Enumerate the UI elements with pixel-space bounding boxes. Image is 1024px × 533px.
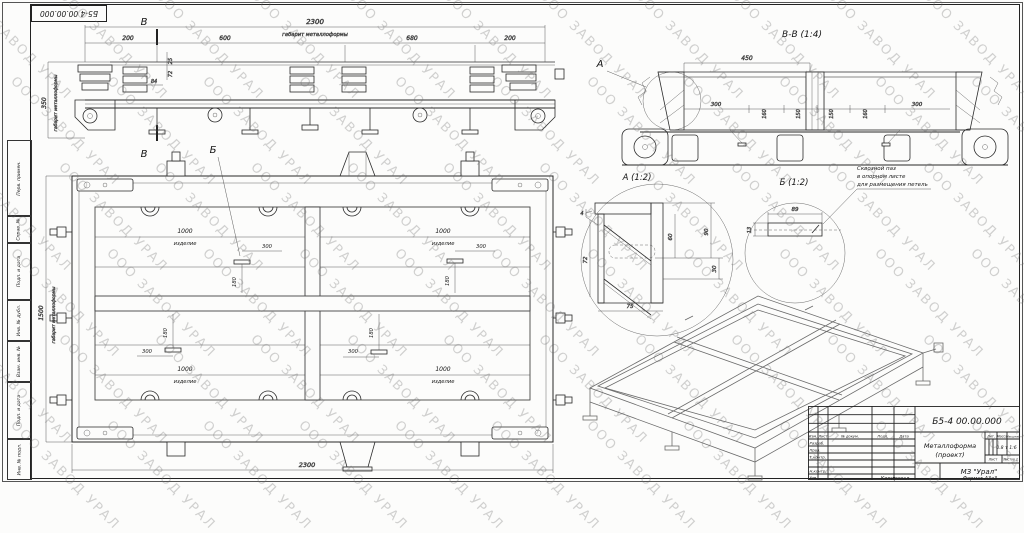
- dim-300-r: 300: [912, 102, 923, 108]
- dim-150-r: 150: [829, 109, 835, 119]
- slot-180-q3: 180: [163, 327, 169, 338]
- row-razrab: Разраб.: [810, 441, 825, 446]
- dim-13: 13: [747, 227, 753, 233]
- slot-180-q1: 180: [232, 276, 238, 287]
- side-label: Перв. примен.: [17, 161, 22, 196]
- row-prov: Пров.: [810, 448, 821, 453]
- left-end-bracket: [75, 65, 115, 130]
- engineering-drawing-sheet: { "watermark": { "text": "ООО ЗАВОД УРАЛ…: [0, 0, 1024, 483]
- col-data: Дата: [898, 435, 908, 439]
- bb-callout-a: А: [596, 59, 701, 130]
- slot-300-q1: 300: [262, 244, 273, 250]
- side-box-inv-podl: Инв. № подл.: [7, 438, 32, 480]
- dim-600: 600: [219, 35, 231, 42]
- col-list: Лист: [817, 435, 828, 439]
- section-bb-title: В-В (1:4): [782, 30, 822, 40]
- dim-350-note: габарит металлоформы: [53, 74, 59, 131]
- designation: Б5-4 00.00.000: [932, 417, 1002, 427]
- note-line-2: в опорном листе: [857, 174, 906, 180]
- detail-b-geometry: [749, 223, 841, 236]
- detail-b-title: Б (1:2): [780, 178, 809, 188]
- front-view: В В 2300 габарит металлоформы 200 600 68…: [40, 5, 575, 165]
- dim-2300: 2300: [306, 18, 324, 26]
- dim-200l: 200: [122, 35, 134, 42]
- detail-b-note: Сквозной паз в опорном листе для размеще…: [823, 166, 931, 224]
- side-box-sprav: Справ. №: [7, 215, 32, 244]
- cell-label-q2: изделие: [432, 241, 455, 247]
- cell-label-q1: изделие: [174, 241, 197, 247]
- side-label: Справ. №: [17, 218, 22, 240]
- callout-letter-b: Б: [210, 145, 217, 156]
- title-block-texts: Б5-4 00.00.000 Металлоформа (проект) МЗ …: [809, 417, 1020, 480]
- dim-160-l: 160: [762, 109, 768, 119]
- plan-frame: [72, 176, 553, 442]
- dim-72: 72: [168, 71, 174, 77]
- top-fixture-cluster: [123, 67, 494, 92]
- organization: МЗ "Урал": [961, 468, 998, 476]
- slot-300-q3: 300: [142, 349, 153, 355]
- cell-dim-q3: 1000: [177, 366, 192, 373]
- dim-89: 89: [792, 207, 799, 213]
- note-line-1: Сквозной паз: [857, 166, 896, 172]
- dim-25: 25: [168, 58, 174, 64]
- part-name-2: (проект): [935, 451, 964, 459]
- side-box-perv-primen: Перв. примен.: [7, 140, 32, 217]
- right-end-bracket: [502, 65, 564, 130]
- col-doc: № докум.: [840, 435, 859, 439]
- slot-300-q2: 300: [476, 244, 487, 250]
- support-posts: [149, 108, 478, 134]
- panel-q1: [95, 207, 305, 296]
- part-name-1: Металлоформа: [924, 442, 976, 450]
- dim-450: 450: [741, 55, 753, 62]
- side-label: Инв. № подл.: [17, 443, 22, 475]
- slot-180-q2: 180: [445, 275, 451, 286]
- dim-300-l: 300: [711, 102, 722, 108]
- slot-180-q4: 180: [369, 327, 375, 338]
- scale-label: Масштаб: [1006, 435, 1020, 439]
- row-utv: Утв.: [810, 475, 818, 480]
- cell-dim-q4: 1000: [435, 366, 450, 373]
- side-box-vzam-inv: Взам. инв. №: [7, 340, 32, 383]
- dim-150-l: 150: [796, 109, 802, 119]
- scale-value: 1:6: [1009, 445, 1016, 451]
- side-label: Подп. и дата: [17, 256, 22, 287]
- dim-30: 30: [712, 265, 718, 272]
- panel-q2: [320, 207, 530, 296]
- plan-view: 1000 изделие 300 180 1000 изделие 300 18…: [35, 145, 575, 483]
- side-label: Взам. инв. №: [17, 346, 22, 377]
- cell-dim-q2: 1000: [435, 228, 450, 235]
- plan-feet: [167, 152, 479, 471]
- dim-1500: 1500: [38, 305, 45, 320]
- dim-680: 680: [406, 35, 418, 42]
- dim-160-r: 160: [863, 109, 869, 119]
- front-body: [75, 62, 564, 134]
- row-nkontr: Н.контр.: [810, 469, 827, 474]
- dim-84: 84: [151, 79, 157, 85]
- title-block: Б5-4 00.00.000 Металлоформа (проект) МЗ …: [808, 406, 1020, 480]
- cell-label-q4: изделие: [432, 379, 455, 385]
- panel-q4: [320, 311, 530, 400]
- footer-copy: Копировал: [855, 476, 935, 482]
- sheet-label: Лист: [988, 458, 999, 462]
- sheets-label: Листов: [1002, 458, 1015, 462]
- dim-90: 90: [704, 228, 710, 235]
- dim-1500-note: габарит металлоформы: [51, 286, 57, 343]
- col-podp: Подп.: [878, 435, 889, 439]
- lit-label: Лит.: [986, 435, 995, 439]
- side-box-podp-data-2: Подп. и дата: [7, 381, 32, 440]
- section-bb-view: В-В (1:4) А 450 300 160: [580, 15, 1020, 170]
- dim-60: 60: [668, 233, 674, 240]
- cell-label-q3: изделие: [174, 379, 197, 385]
- plan-callout-b: Б: [210, 145, 240, 256]
- col-izm: Изм.: [809, 435, 817, 439]
- side-box-podp-data-1: Подп. и дата: [7, 242, 32, 301]
- callout-letter-a: А: [596, 59, 604, 70]
- sheets-value: 1: [1016, 458, 1018, 462]
- dim-note: габарит металлоформы: [282, 32, 348, 38]
- mass-value: 0.8 т: [996, 445, 1008, 451]
- row-tkontr: Т.контр.: [810, 455, 826, 460]
- weld-mark: 4: [580, 211, 583, 217]
- dim-72a: 72: [583, 256, 589, 263]
- dim-2300-plan: 2300: [299, 461, 316, 469]
- cell-dim-q1: 1000: [177, 228, 192, 235]
- dim-350: 350: [41, 97, 48, 109]
- side-box-inv-dubl: Инв. № дубл.: [7, 299, 32, 342]
- side-label: Подп. и дата: [17, 395, 22, 426]
- panel-q3: [95, 311, 305, 400]
- note-line-3: для размещения петель: [856, 182, 928, 188]
- slot-300-q4: 300: [348, 349, 359, 355]
- footer-format: Формат А3х3: [942, 476, 1018, 482]
- section-letter-top: В: [141, 17, 148, 28]
- side-label: Инв. № дубл.: [17, 305, 22, 336]
- dim-200r: 200: [504, 35, 516, 42]
- detail-a-title: А (1:2): [622, 173, 652, 183]
